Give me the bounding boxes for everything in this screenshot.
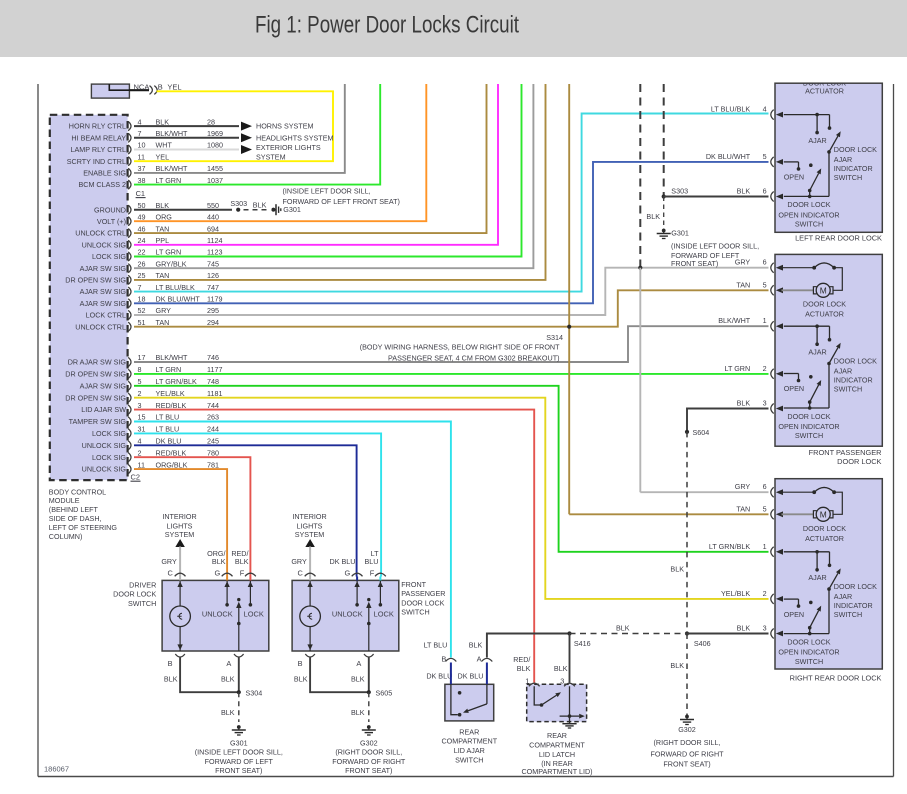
svg-text:DR OPEN SW SIG: DR OPEN SW SIG xyxy=(65,276,126,285)
svg-text:DOOR LOCK: DOOR LOCK xyxy=(834,356,877,365)
svg-text:46: 46 xyxy=(138,224,146,233)
svg-text:S406: S406 xyxy=(694,639,711,648)
svg-text:LT GRN/BLK: LT GRN/BLK xyxy=(709,542,750,551)
svg-text:YEL/BLK: YEL/BLK xyxy=(156,389,185,398)
svg-text:G301: G301 xyxy=(671,228,689,237)
svg-text:DR OPEN SW SIG: DR OPEN SW SIG xyxy=(65,393,126,402)
svg-text:BODY CONTROL: BODY CONTROL xyxy=(49,487,106,496)
svg-text:B: B xyxy=(158,83,163,92)
svg-text:S304: S304 xyxy=(246,688,263,697)
svg-text:295: 295 xyxy=(207,306,219,315)
svg-text:GRY: GRY xyxy=(735,258,751,267)
svg-text:GRY: GRY xyxy=(156,306,172,315)
svg-text:SIDE OF DASH,: SIDE OF DASH, xyxy=(49,514,102,523)
svg-text:748: 748 xyxy=(207,377,219,386)
svg-text:REAR: REAR xyxy=(459,727,479,736)
svg-text:M: M xyxy=(820,509,827,519)
svg-text:SWITCH: SWITCH xyxy=(834,385,862,394)
svg-text:5: 5 xyxy=(763,504,767,513)
svg-text:BLK: BLK xyxy=(221,708,235,717)
svg-text:1969: 1969 xyxy=(207,129,223,138)
svg-text:GRY: GRY xyxy=(735,482,751,491)
svg-text:C: C xyxy=(168,568,174,577)
svg-text:FORWARD OF LEFT: FORWARD OF LEFT xyxy=(205,757,274,766)
svg-text:INDICATOR: INDICATOR xyxy=(834,601,873,610)
svg-text:SWITCH: SWITCH xyxy=(834,610,862,619)
svg-text:3: 3 xyxy=(560,676,564,685)
svg-text:GROUND: GROUND xyxy=(94,205,126,214)
svg-text:52: 52 xyxy=(138,306,146,315)
svg-text:AJAR SW SIG: AJAR SW SIG xyxy=(80,299,127,308)
svg-text:UNLOCK: UNLOCK xyxy=(332,610,363,619)
svg-text:TAN: TAN xyxy=(736,280,750,289)
svg-text:FORWARD OF RIGHT: FORWARD OF RIGHT xyxy=(332,757,406,766)
svg-text:FRONT SEAT): FRONT SEAT) xyxy=(215,766,262,775)
svg-text:ORG/BLK: ORG/BLK xyxy=(156,460,188,469)
svg-text:INDICATOR: INDICATOR xyxy=(834,164,873,173)
svg-text:263: 263 xyxy=(207,413,219,422)
svg-text:LOCK CTRL: LOCK CTRL xyxy=(86,311,126,320)
svg-text:DOOR LOCK: DOOR LOCK xyxy=(834,145,877,154)
svg-text:BLK: BLK xyxy=(616,624,630,633)
svg-text:G301: G301 xyxy=(283,205,301,214)
svg-text:BLK: BLK xyxy=(351,708,365,717)
svg-text:LT BLU/BLK: LT BLU/BLK xyxy=(156,283,195,292)
svg-text:BLK: BLK xyxy=(294,674,308,683)
svg-text:EXTERIOR LIGHTS: EXTERIOR LIGHTS xyxy=(256,143,321,152)
svg-text:AJAR: AJAR xyxy=(834,155,852,164)
svg-text:50: 50 xyxy=(138,201,146,210)
svg-text:TAMPER SW SIG: TAMPER SW SIG xyxy=(69,417,127,426)
svg-text:M: M xyxy=(820,285,827,295)
svg-text:LT GRN: LT GRN xyxy=(156,248,182,257)
svg-text:DOOR LOCK: DOOR LOCK xyxy=(837,457,881,466)
svg-text:DR OPEN SW SIG: DR OPEN SW SIG xyxy=(65,370,126,379)
svg-text:DRIVER: DRIVER xyxy=(129,580,156,589)
svg-text:LT GRN: LT GRN xyxy=(724,364,750,373)
svg-text:BLK: BLK xyxy=(156,201,170,210)
svg-text:SWITCH: SWITCH xyxy=(795,657,823,666)
svg-text:YEL: YEL xyxy=(156,152,170,161)
svg-text:8: 8 xyxy=(138,365,142,374)
svg-text:BLK: BLK xyxy=(253,201,267,210)
svg-text:FRONT SEAT): FRONT SEAT) xyxy=(345,766,392,775)
svg-text:1181: 1181 xyxy=(207,389,222,398)
svg-text:245: 245 xyxy=(207,437,219,446)
svg-text:FRONT SEAT): FRONT SEAT) xyxy=(663,760,710,769)
svg-text:AJAR: AJAR xyxy=(834,367,852,376)
svg-text:DOOR LOCK: DOOR LOCK xyxy=(787,637,830,646)
svg-text:1037: 1037 xyxy=(207,176,223,185)
svg-text:(BEHIND LEFT: (BEHIND LEFT xyxy=(49,505,99,514)
svg-text:HEADLIGHTS SYSTEM: HEADLIGHTS SYSTEM xyxy=(256,133,333,142)
svg-text:BLK: BLK xyxy=(670,661,684,670)
svg-text:FORWARD OF RIGHT: FORWARD OF RIGHT xyxy=(650,749,724,758)
svg-text:7: 7 xyxy=(138,129,142,138)
svg-text:OPEN: OPEN xyxy=(784,610,804,619)
svg-text:OPEN: OPEN xyxy=(784,384,804,393)
svg-text:C: C xyxy=(298,568,304,577)
svg-text:B: B xyxy=(298,659,303,668)
svg-text:15: 15 xyxy=(138,413,146,422)
svg-text:3: 3 xyxy=(138,401,142,410)
svg-text:UNLOCK SIG: UNLOCK SIG xyxy=(82,240,127,249)
svg-text:126: 126 xyxy=(207,271,219,280)
svg-text:DR AJAR SW SIG: DR AJAR SW SIG xyxy=(68,358,127,367)
svg-text:BLK/WHT: BLK/WHT xyxy=(156,164,189,173)
svg-text:DOOR LOCK: DOOR LOCK xyxy=(787,412,830,421)
svg-text:ENABLE SIG: ENABLE SIG xyxy=(83,169,126,178)
svg-text:186067: 186067 xyxy=(44,765,69,774)
svg-text:G302: G302 xyxy=(678,725,696,734)
svg-text:2: 2 xyxy=(763,589,767,598)
svg-text:INTERIOR: INTERIOR xyxy=(292,512,326,521)
svg-text:SWITCH: SWITCH xyxy=(401,608,429,617)
svg-text:OPEN INDICATOR: OPEN INDICATOR xyxy=(778,648,839,657)
svg-text:TAN: TAN xyxy=(156,318,170,327)
svg-text:LOCK: LOCK xyxy=(244,610,264,619)
svg-text:294: 294 xyxy=(207,318,219,327)
svg-text:AJAR: AJAR xyxy=(808,348,826,357)
svg-text:OPEN INDICATOR: OPEN INDICATOR xyxy=(778,422,839,431)
svg-text:BLK: BLK xyxy=(554,664,568,673)
svg-text:F: F xyxy=(240,568,245,577)
svg-text:747: 747 xyxy=(207,283,219,292)
svg-text:1124: 1124 xyxy=(207,236,222,245)
svg-text:4: 4 xyxy=(763,105,767,114)
svg-text:26: 26 xyxy=(138,259,146,268)
svg-text:25: 25 xyxy=(138,271,146,280)
svg-text:S605: S605 xyxy=(376,688,393,697)
svg-text:A: A xyxy=(477,654,482,663)
svg-text:PASSENGER: PASSENGER xyxy=(401,589,445,598)
svg-text:LT GRN: LT GRN xyxy=(156,176,182,185)
svg-text:22: 22 xyxy=(138,248,146,257)
svg-text:HORN RLY CTRL: HORN RLY CTRL xyxy=(69,122,126,131)
svg-text:37: 37 xyxy=(138,164,146,173)
svg-text:BLK: BLK xyxy=(164,674,178,683)
svg-text:LID AJAR SW: LID AJAR SW xyxy=(81,405,126,414)
svg-text:4: 4 xyxy=(138,117,142,126)
svg-text:AJAR SW SIG: AJAR SW SIG xyxy=(80,381,127,390)
svg-text:UNLOCK SIG: UNLOCK SIG xyxy=(82,441,127,450)
svg-text:LEFT OF STEERING: LEFT OF STEERING xyxy=(49,523,118,532)
svg-text:MODULE: MODULE xyxy=(49,496,80,505)
svg-text:31: 31 xyxy=(138,425,146,434)
svg-text:OPEN INDICATOR: OPEN INDICATOR xyxy=(778,210,839,219)
svg-text:SWITCH: SWITCH xyxy=(834,173,862,182)
svg-text:550: 550 xyxy=(207,201,219,210)
svg-text:PPL: PPL xyxy=(156,236,170,245)
svg-text:REAR: REAR xyxy=(547,731,567,740)
svg-text:UNLOCK SIG: UNLOCK SIG xyxy=(82,465,127,474)
svg-text:38: 38 xyxy=(138,176,146,185)
svg-text:DOOR LOCK: DOOR LOCK xyxy=(803,300,846,309)
svg-text:TAN: TAN xyxy=(736,504,750,513)
svg-text:GRY: GRY xyxy=(161,557,177,566)
svg-text:VOLT (+): VOLT (+) xyxy=(97,217,126,226)
svg-text:FRONT SEAT): FRONT SEAT) xyxy=(671,259,718,268)
svg-text:AJAR SW SIG: AJAR SW SIG xyxy=(80,264,127,273)
svg-text:TAN: TAN xyxy=(156,271,170,280)
svg-text:744: 744 xyxy=(207,401,219,410)
svg-text:3: 3 xyxy=(763,399,767,408)
svg-text:745: 745 xyxy=(207,259,219,268)
svg-text:S303: S303 xyxy=(230,199,247,208)
svg-text:ACTUATOR: ACTUATOR xyxy=(805,309,844,318)
svg-text:BLK: BLK xyxy=(212,557,226,566)
svg-text:49: 49 xyxy=(138,212,146,221)
svg-text:FRONT PASSENGER: FRONT PASSENGER xyxy=(809,448,882,457)
svg-text:6: 6 xyxy=(763,258,767,267)
svg-text:11: 11 xyxy=(138,152,145,161)
svg-text:DOOR LOCK: DOOR LOCK xyxy=(834,582,877,591)
svg-text:SWITCH: SWITCH xyxy=(128,599,156,608)
svg-text:SYSTEM: SYSTEM xyxy=(295,530,325,539)
svg-text:7: 7 xyxy=(138,283,142,292)
svg-text:C1: C1 xyxy=(136,189,145,198)
svg-text:SYSTEM: SYSTEM xyxy=(256,153,286,162)
svg-text:BLU: BLU xyxy=(365,557,379,566)
svg-text:GRY/BLK: GRY/BLK xyxy=(156,259,187,268)
svg-text:5: 5 xyxy=(763,280,767,289)
svg-text:1123: 1123 xyxy=(207,248,222,257)
svg-text:BLK: BLK xyxy=(469,641,483,650)
svg-text:BLK/WHT: BLK/WHT xyxy=(156,129,189,138)
svg-text:Fig 1: Power Door Locks Circui: Fig 1: Power Door Locks Circuit xyxy=(255,12,519,39)
svg-text:A: A xyxy=(356,659,361,668)
svg-text:(INSIDE LEFT DOOR SILL,: (INSIDE LEFT DOOR SILL, xyxy=(283,187,371,196)
svg-text:INTERIOR: INTERIOR xyxy=(162,512,196,521)
svg-text:BLK: BLK xyxy=(737,399,751,408)
svg-text:RED/BLK: RED/BLK xyxy=(156,448,187,457)
svg-text:1080: 1080 xyxy=(207,141,223,150)
svg-text:5: 5 xyxy=(763,152,767,161)
svg-text:YEL/BLK: YEL/BLK xyxy=(721,589,750,598)
svg-text:24: 24 xyxy=(138,236,146,245)
svg-text:28: 28 xyxy=(207,117,215,126)
svg-text:FRONT: FRONT xyxy=(401,580,426,589)
svg-text:G301: G301 xyxy=(230,738,248,747)
svg-text:LT BLU: LT BLU xyxy=(424,641,448,650)
svg-text:6: 6 xyxy=(763,187,767,196)
svg-text:LAMP RLY CTRL: LAMP RLY CTRL xyxy=(70,145,126,154)
svg-text:LT BLU: LT BLU xyxy=(156,413,180,422)
svg-text:1: 1 xyxy=(763,316,767,325)
svg-text:SCRTY IND CTRL: SCRTY IND CTRL xyxy=(67,157,126,166)
svg-text:S604: S604 xyxy=(693,428,710,437)
svg-text:LIGHTS: LIGHTS xyxy=(167,521,193,530)
svg-text:(INSIDE LEFT DOOR SILL,: (INSIDE LEFT DOOR SILL, xyxy=(671,242,759,251)
svg-text:440: 440 xyxy=(207,212,219,221)
svg-text:51: 51 xyxy=(138,318,146,327)
svg-text:LID LATCH: LID LATCH xyxy=(539,750,575,759)
svg-text:B: B xyxy=(168,659,173,668)
svg-text:C2: C2 xyxy=(131,473,140,482)
svg-text:DK BLU/WHT: DK BLU/WHT xyxy=(706,152,751,161)
svg-text:HI BEAM RELAY: HI BEAM RELAY xyxy=(71,133,126,142)
svg-text:SWITCH: SWITCH xyxy=(795,431,823,440)
svg-text:1455: 1455 xyxy=(207,164,223,173)
svg-text:18: 18 xyxy=(138,295,146,304)
svg-text:DOOR LOCK: DOOR LOCK xyxy=(113,590,156,599)
svg-text:(RIGHT DOOR SILL,: (RIGHT DOOR SILL, xyxy=(654,738,721,747)
svg-text:G: G xyxy=(215,568,221,577)
svg-text:LEFT REAR DOOR LOCK: LEFT REAR DOOR LOCK xyxy=(795,233,882,242)
svg-text:AJAR: AJAR xyxy=(808,136,826,145)
svg-text:G302: G302 xyxy=(360,738,378,747)
svg-text:DK BLU: DK BLU xyxy=(426,671,452,680)
svg-text:RED/BLK: RED/BLK xyxy=(156,401,187,410)
svg-text:BLK/WHT: BLK/WHT xyxy=(156,353,189,362)
svg-text:AJAR SW SIG: AJAR SW SIG xyxy=(80,287,127,296)
svg-text:SYSTEM: SYSTEM xyxy=(165,530,195,539)
svg-text:(RIGHT DOOR SILL,: (RIGHT DOOR SILL, xyxy=(335,748,402,757)
svg-text:DK BLU: DK BLU xyxy=(156,437,182,446)
svg-text:LT GRN: LT GRN xyxy=(156,365,182,374)
svg-text:(BODY WIRING HARNESS, BELOW RI: (BODY WIRING HARNESS, BELOW RIGHT SIDE O… xyxy=(360,342,560,351)
svg-text:COMPARTMENT LID): COMPARTMENT LID) xyxy=(521,767,592,776)
svg-text:BLK: BLK xyxy=(646,212,660,221)
svg-text:BLK/WHT: BLK/WHT xyxy=(718,316,751,325)
svg-text:COLUMN): COLUMN) xyxy=(49,532,83,541)
svg-text:UNLOCK CTRL: UNLOCK CTRL xyxy=(75,229,126,238)
svg-text:DOOR LOCK: DOOR LOCK xyxy=(787,200,830,209)
svg-text:LT BLU/BLK: LT BLU/BLK xyxy=(711,105,750,114)
svg-text:OPEN: OPEN xyxy=(784,173,804,182)
svg-text:DOOR LOCK: DOOR LOCK xyxy=(803,524,846,533)
svg-text:F: F xyxy=(370,568,375,577)
svg-text:S303: S303 xyxy=(671,186,688,195)
svg-text:PASSENGER SEAT, 4 CM FROM G302: PASSENGER SEAT, 4 CM FROM G302 BREAKOUT) xyxy=(388,353,559,362)
svg-text:DK BLU: DK BLU xyxy=(458,671,484,680)
svg-text:COMPARTMENT: COMPARTMENT xyxy=(529,741,585,750)
svg-text:4: 4 xyxy=(138,437,142,446)
svg-text:BLK: BLK xyxy=(156,117,170,126)
svg-text:DK BLU/WHT: DK BLU/WHT xyxy=(156,295,201,304)
svg-text:2: 2 xyxy=(763,364,767,373)
svg-text:1: 1 xyxy=(525,676,529,685)
svg-text:FORWARD OF LEFT FRONT SEAT): FORWARD OF LEFT FRONT SEAT) xyxy=(283,197,400,206)
svg-text:GRY: GRY xyxy=(291,557,307,566)
svg-text:BLK: BLK xyxy=(737,624,751,633)
svg-text:ORG: ORG xyxy=(156,212,173,221)
svg-text:1179: 1179 xyxy=(207,295,222,304)
svg-text:(INSIDE LEFT DOOR SILL,: (INSIDE LEFT DOOR SILL, xyxy=(195,748,283,757)
svg-text:DOOR LOCK: DOOR LOCK xyxy=(401,598,444,607)
svg-text:244: 244 xyxy=(207,425,219,434)
svg-text:746: 746 xyxy=(207,353,219,362)
svg-text:11: 11 xyxy=(138,460,145,469)
svg-text:17: 17 xyxy=(138,353,146,362)
svg-text:781: 781 xyxy=(207,460,219,469)
svg-text:SWITCH: SWITCH xyxy=(795,220,823,229)
svg-text:BLK: BLK xyxy=(351,674,365,683)
svg-text:BLK: BLK xyxy=(517,664,531,673)
svg-text:S416: S416 xyxy=(574,639,591,648)
svg-text:UNLOCK CTRL: UNLOCK CTRL xyxy=(75,322,126,331)
svg-text:10: 10 xyxy=(138,141,146,150)
svg-text:3: 3 xyxy=(763,624,767,633)
svg-text:BLK: BLK xyxy=(670,565,684,574)
svg-text:BLK: BLK xyxy=(737,187,751,196)
svg-text:S314: S314 xyxy=(546,333,563,342)
svg-text:UNLOCK: UNLOCK xyxy=(202,610,233,619)
svg-text:WHT: WHT xyxy=(156,141,173,150)
svg-text:LOCK SIG: LOCK SIG xyxy=(92,453,126,462)
svg-text:694: 694 xyxy=(207,224,219,233)
svg-text:LT BLU: LT BLU xyxy=(156,425,180,434)
svg-text:G: G xyxy=(345,568,351,577)
svg-text:LIGHTS: LIGHTS xyxy=(297,521,323,530)
svg-text:ACTUATOR: ACTUATOR xyxy=(805,534,844,543)
svg-text:LOCK SIG: LOCK SIG xyxy=(92,252,126,261)
svg-text:1: 1 xyxy=(763,542,767,551)
svg-text:NCA: NCA xyxy=(134,83,150,92)
svg-text:DK BLU: DK BLU xyxy=(330,557,356,566)
svg-text:LT GRN/BLK: LT GRN/BLK xyxy=(156,377,197,386)
svg-text:RIGHT REAR DOOR LOCK: RIGHT REAR DOOR LOCK xyxy=(790,673,882,682)
svg-text:BLK: BLK xyxy=(235,557,249,566)
svg-text:6: 6 xyxy=(763,482,767,491)
svg-text:ACTUATOR: ACTUATOR xyxy=(805,87,844,96)
svg-text:INDICATOR: INDICATOR xyxy=(834,375,873,384)
svg-text:AJAR: AJAR xyxy=(834,592,852,601)
svg-text:2: 2 xyxy=(138,448,142,457)
svg-text:YEL: YEL xyxy=(167,83,181,92)
svg-text:COMPARTMENT: COMPARTMENT xyxy=(441,737,497,746)
svg-text:BCM CLASS 2: BCM CLASS 2 xyxy=(78,180,126,189)
svg-text:SWITCH: SWITCH xyxy=(455,755,483,764)
svg-text:5: 5 xyxy=(138,377,142,386)
svg-text:B: B xyxy=(441,654,446,663)
svg-text:2: 2 xyxy=(138,389,142,398)
svg-text:LOCK SIG: LOCK SIG xyxy=(92,429,126,438)
svg-text:AJAR: AJAR xyxy=(808,573,826,582)
svg-text:LOCK: LOCK xyxy=(374,610,394,619)
svg-text:HORNS SYSTEM: HORNS SYSTEM xyxy=(256,122,314,131)
svg-text:A: A xyxy=(226,659,231,668)
svg-text:TAN: TAN xyxy=(156,224,170,233)
svg-text:BLK: BLK xyxy=(221,674,235,683)
svg-text:LID AJAR: LID AJAR xyxy=(454,746,485,755)
svg-text:780: 780 xyxy=(207,448,219,457)
svg-text:1177: 1177 xyxy=(207,365,222,374)
